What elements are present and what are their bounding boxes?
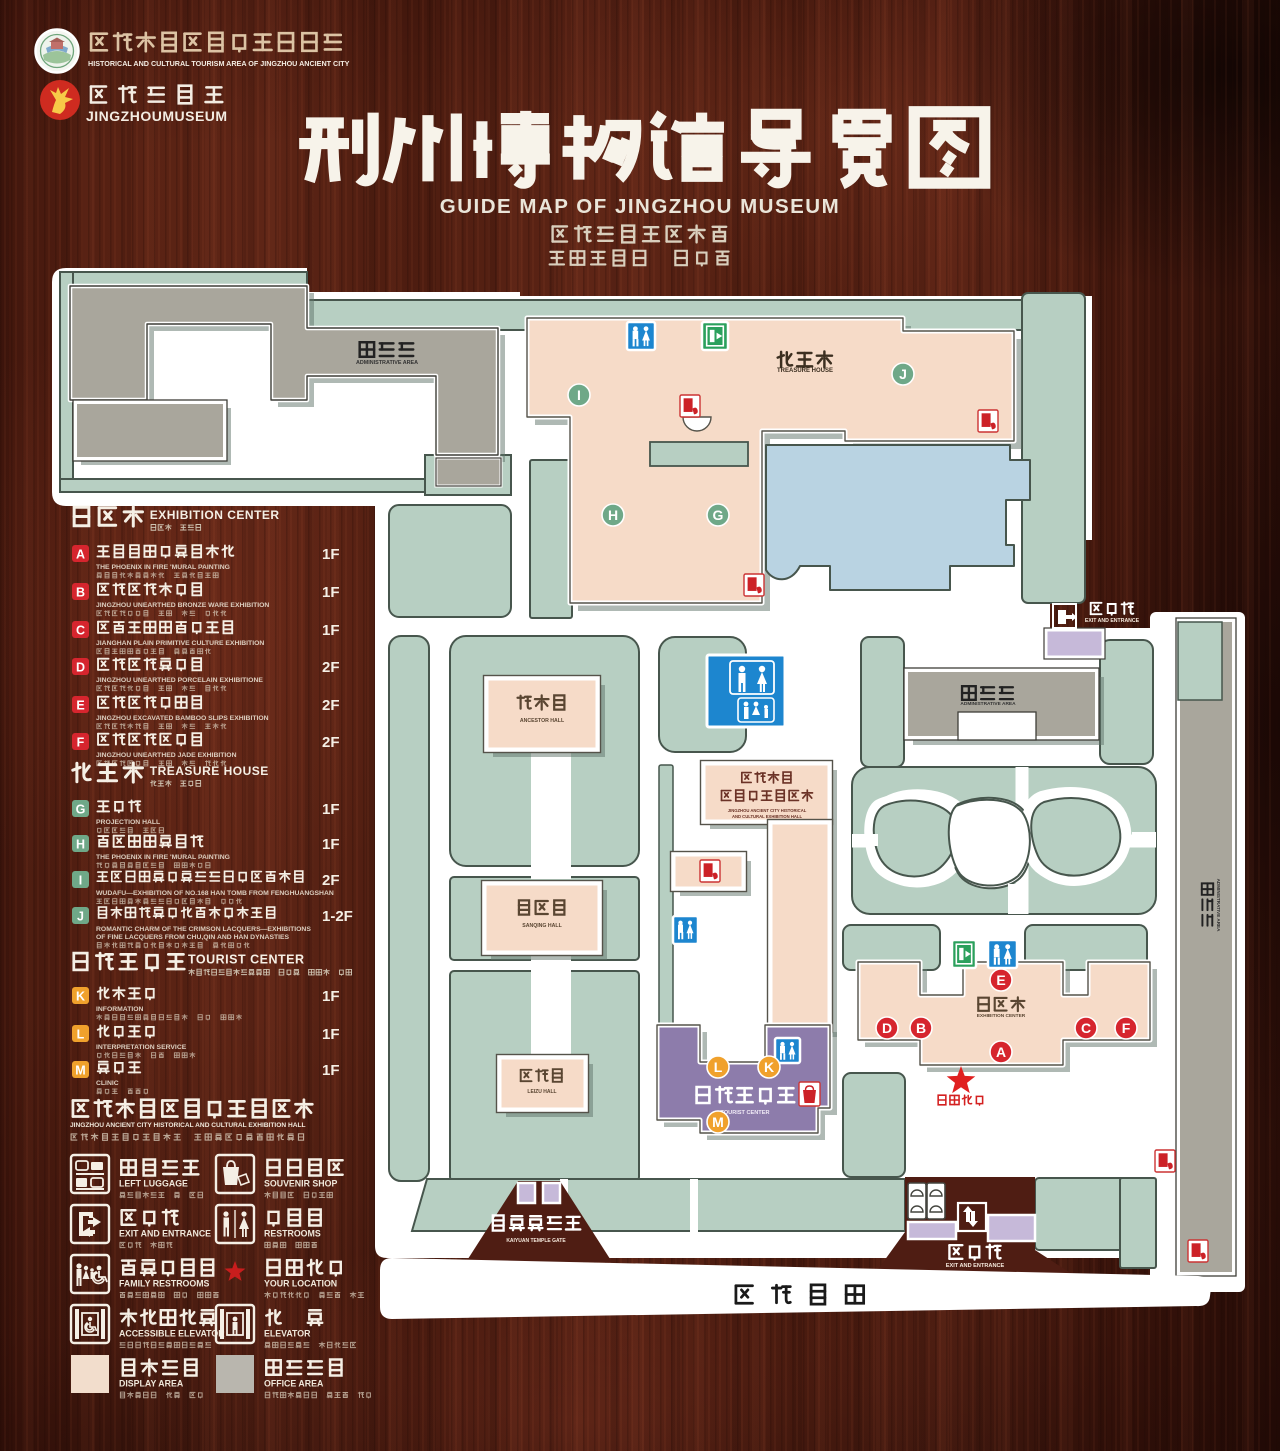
svg-text:L: L xyxy=(714,1059,723,1075)
svg-text:INFORMATION: INFORMATION xyxy=(96,1006,144,1013)
svg-text:1F: 1F xyxy=(322,1062,340,1079)
svg-text:F: F xyxy=(1122,1020,1131,1036)
svg-text:I: I xyxy=(79,874,82,888)
svg-text:TREASURE HOUSE: TREASURE HOUSE xyxy=(777,368,833,374)
svg-text:DISPLAY AREA: DISPLAY AREA xyxy=(119,1379,184,1389)
svg-text:2F: 2F xyxy=(322,697,340,714)
svg-text:KAIYUAN TEMPLE GATE: KAIYUAN TEMPLE GATE xyxy=(506,1238,566,1244)
svg-text:INTERPRETATION SERVICE: INTERPRETATION SERVICE xyxy=(96,1044,187,1051)
svg-text:1F: 1F xyxy=(322,988,340,1005)
svg-text:1F: 1F xyxy=(322,836,340,853)
svg-text:FAMILY RESTROOMS: FAMILY RESTROOMS xyxy=(119,1279,210,1289)
svg-text:JINGZHOU UNEARTHED BRONZE WARE: JINGZHOU UNEARTHED BRONZE WARE EXHIBITIO… xyxy=(96,602,269,609)
svg-text:K: K xyxy=(764,1059,774,1075)
svg-text:1F: 1F xyxy=(322,801,340,818)
svg-text:2F: 2F xyxy=(322,872,340,889)
svg-text:EXHIBITION CENTER: EXHIBITION CENTER xyxy=(150,508,280,522)
svg-text:EXIT AND ENTRANCE: EXIT AND ENTRANCE xyxy=(1085,618,1140,624)
svg-text:RESTROOMS: RESTROOMS xyxy=(264,1229,321,1239)
svg-text:SANQING HALL: SANQING HALL xyxy=(522,923,562,929)
svg-text:H: H xyxy=(76,838,85,852)
svg-text:JINGZHOUMUSEUM: JINGZHOUMUSEUM xyxy=(86,108,228,124)
svg-text:SOUVENIR SHOP: SOUVENIR SHOP xyxy=(264,1179,337,1189)
svg-text:WUDAFU—EXHIBITION OF NO.168 HA: WUDAFU—EXHIBITION OF NO.168 HAN TOMB FRO… xyxy=(96,890,334,897)
svg-text:1F: 1F xyxy=(322,546,340,563)
svg-text:THE PHOENIX IN FIRE 'MURAL PAI: THE PHOENIX IN FIRE 'MURAL PAINTING xyxy=(96,854,230,861)
svg-text:1F: 1F xyxy=(322,1026,340,1043)
svg-text:M: M xyxy=(712,1114,724,1130)
svg-text:AND CULTURAL EXHIBITION HALL: AND CULTURAL EXHIBITION HALL xyxy=(732,814,803,819)
svg-text:YOUR LOCATION: YOUR LOCATION xyxy=(264,1279,337,1289)
svg-text:EXIT AND ENTRANCE: EXIT AND ENTRANCE xyxy=(946,1263,1005,1269)
svg-text:TOURIST CENTER: TOURIST CENTER xyxy=(188,953,305,967)
svg-text:EXIT AND ENTRANCE: EXIT AND ENTRANCE xyxy=(119,1229,211,1239)
svg-text:M: M xyxy=(75,1064,85,1078)
svg-text:1F: 1F xyxy=(322,622,340,639)
svg-text:H: H xyxy=(608,507,618,523)
svg-text:G: G xyxy=(76,803,86,817)
svg-text:F: F xyxy=(77,736,85,750)
svg-text:A: A xyxy=(76,548,85,562)
svg-text:L: L xyxy=(77,1028,85,1042)
svg-text:C: C xyxy=(1081,1020,1091,1036)
svg-text:I: I xyxy=(577,387,581,403)
svg-text:JINGZHOU EXCAVATED BAMBOO SLIP: JINGZHOU EXCAVATED BAMBOO SLIPS EXHIBITI… xyxy=(96,715,269,722)
svg-text:1F: 1F xyxy=(322,584,340,601)
svg-text:JINGZHOU ANCIENT CITY HISTORIC: JINGZHOU ANCIENT CITY HISTORICAL xyxy=(728,808,807,813)
svg-text:JINGZHOU UNEARTHED JADE EXHIBI: JINGZHOU UNEARTHED JADE EXHIBITION xyxy=(96,752,237,759)
svg-text:THE PHOENIX IN FIRE 'MURAL PAI: THE PHOENIX IN FIRE 'MURAL PAINTING xyxy=(96,564,230,571)
svg-text:ROMANTIC CHARM OF THE CRIMSON: ROMANTIC CHARM OF THE CRIMSON LACQUERS—E… xyxy=(96,926,311,933)
svg-text:1-2F: 1-2F xyxy=(322,908,353,925)
svg-text:ADMINISTRATIVE AREA: ADMINISTRATIVE AREA xyxy=(1216,879,1221,933)
svg-text:ELEVATOR: ELEVATOR xyxy=(264,1329,311,1339)
svg-text:ACCESSIBLE ELEVATOR: ACCESSIBLE ELEVATOR xyxy=(119,1329,225,1339)
svg-text:E: E xyxy=(76,699,84,713)
svg-text:D: D xyxy=(882,1020,892,1036)
svg-text:B: B xyxy=(916,1020,926,1036)
svg-text:ANCESTOR HALL: ANCESTOR HALL xyxy=(520,718,565,724)
svg-text:D: D xyxy=(76,661,85,675)
svg-text:2F: 2F xyxy=(322,659,340,676)
svg-text:LEIZU HALL: LEIZU HALL xyxy=(527,1089,556,1095)
svg-text:A: A xyxy=(996,1044,1006,1060)
svg-text:B: B xyxy=(76,586,85,600)
svg-text:GUIDE MAP OF JINGZHOU MUSEUM: GUIDE MAP OF JINGZHOU MUSEUM xyxy=(440,195,840,218)
svg-text:2F: 2F xyxy=(322,734,340,751)
svg-text:TREASURE HOUSE: TREASURE HOUSE xyxy=(150,764,269,778)
svg-text:OF FINE LACQUERS FROM CHU,QIN: OF FINE LACQUERS FROM CHU,QIN AND HAN DY… xyxy=(96,934,290,941)
svg-text:C: C xyxy=(76,624,85,638)
svg-text:E: E xyxy=(996,972,1005,988)
svg-text:JINGZHOU ANCIENT CITY HISTORIC: JINGZHOU ANCIENT CITY HISTORICAL AND CUL… xyxy=(70,1122,306,1129)
svg-text:ADMINISTRATIVE AREA: ADMINISTRATIVE AREA xyxy=(356,360,418,366)
svg-text:TOURIST CENTER: TOURIST CENTER xyxy=(721,1110,770,1116)
svg-text:K: K xyxy=(76,990,85,1004)
svg-text:PROJECTION HALL: PROJECTION HALL xyxy=(96,819,160,826)
svg-text:CLINIC: CLINIC xyxy=(96,1080,119,1087)
svg-text:EXHIBITION CENTER: EXHIBITION CENTER xyxy=(977,1013,1026,1019)
svg-text:ADMINISTRATIVE AREA: ADMINISTRATIVE AREA xyxy=(960,701,1016,707)
svg-text:OFFICE AREA: OFFICE AREA xyxy=(264,1379,324,1389)
svg-text:JIANGHAN PLAIN PRIMITIVE CULTU: JIANGHAN PLAIN PRIMITIVE CULTURE EXHIBIT… xyxy=(96,640,264,647)
svg-text:G: G xyxy=(713,507,724,523)
svg-text:HISTORICAL AND CULTURAL TOURIS: HISTORICAL AND CULTURAL TOURISM AREA OF … xyxy=(88,59,350,68)
svg-text:J: J xyxy=(77,910,84,924)
svg-text:JINGZHOU UNEARTHED PORCELAIN E: JINGZHOU UNEARTHED PORCELAIN EXHIBITIONE xyxy=(96,677,263,684)
svg-text:LEFT LUGGAGE: LEFT LUGGAGE xyxy=(119,1179,188,1189)
svg-text:J: J xyxy=(899,366,907,382)
